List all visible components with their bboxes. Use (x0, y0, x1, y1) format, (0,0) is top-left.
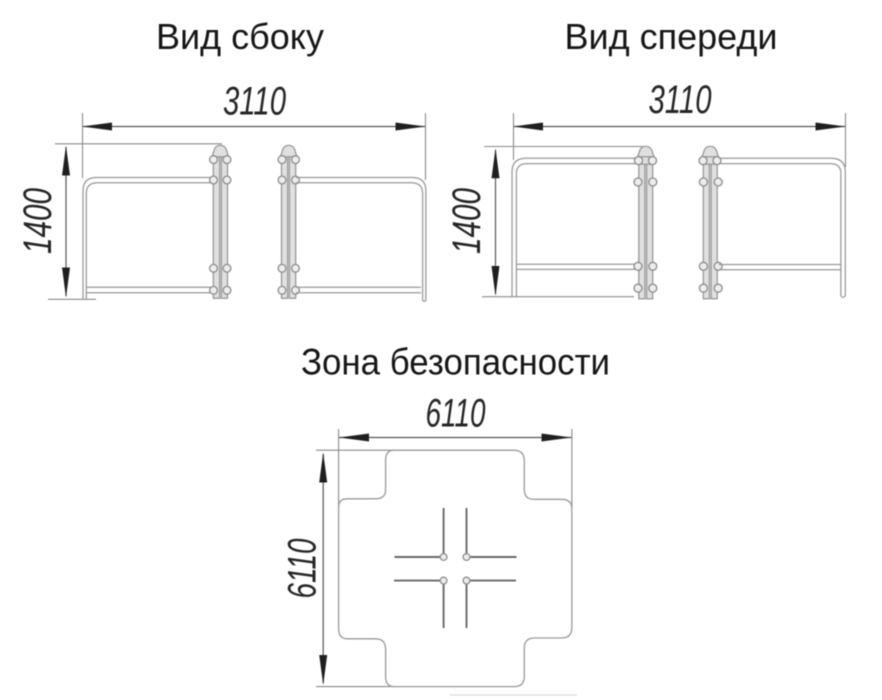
svg-text:3110: 3110 (649, 78, 712, 122)
svg-text:Зона безопасности: Зона безопасности (301, 342, 610, 383)
svg-text:6110: 6110 (281, 539, 325, 599)
svg-text:Вид спереди: Вид спереди (564, 16, 777, 57)
svg-text:3110: 3110 (223, 80, 286, 124)
svg-text:6110: 6110 (426, 392, 486, 436)
svg-text:Вид сбоку: Вид сбоку (156, 16, 324, 57)
svg-text:1400: 1400 (16, 188, 60, 254)
svg-text:1400: 1400 (445, 188, 489, 254)
